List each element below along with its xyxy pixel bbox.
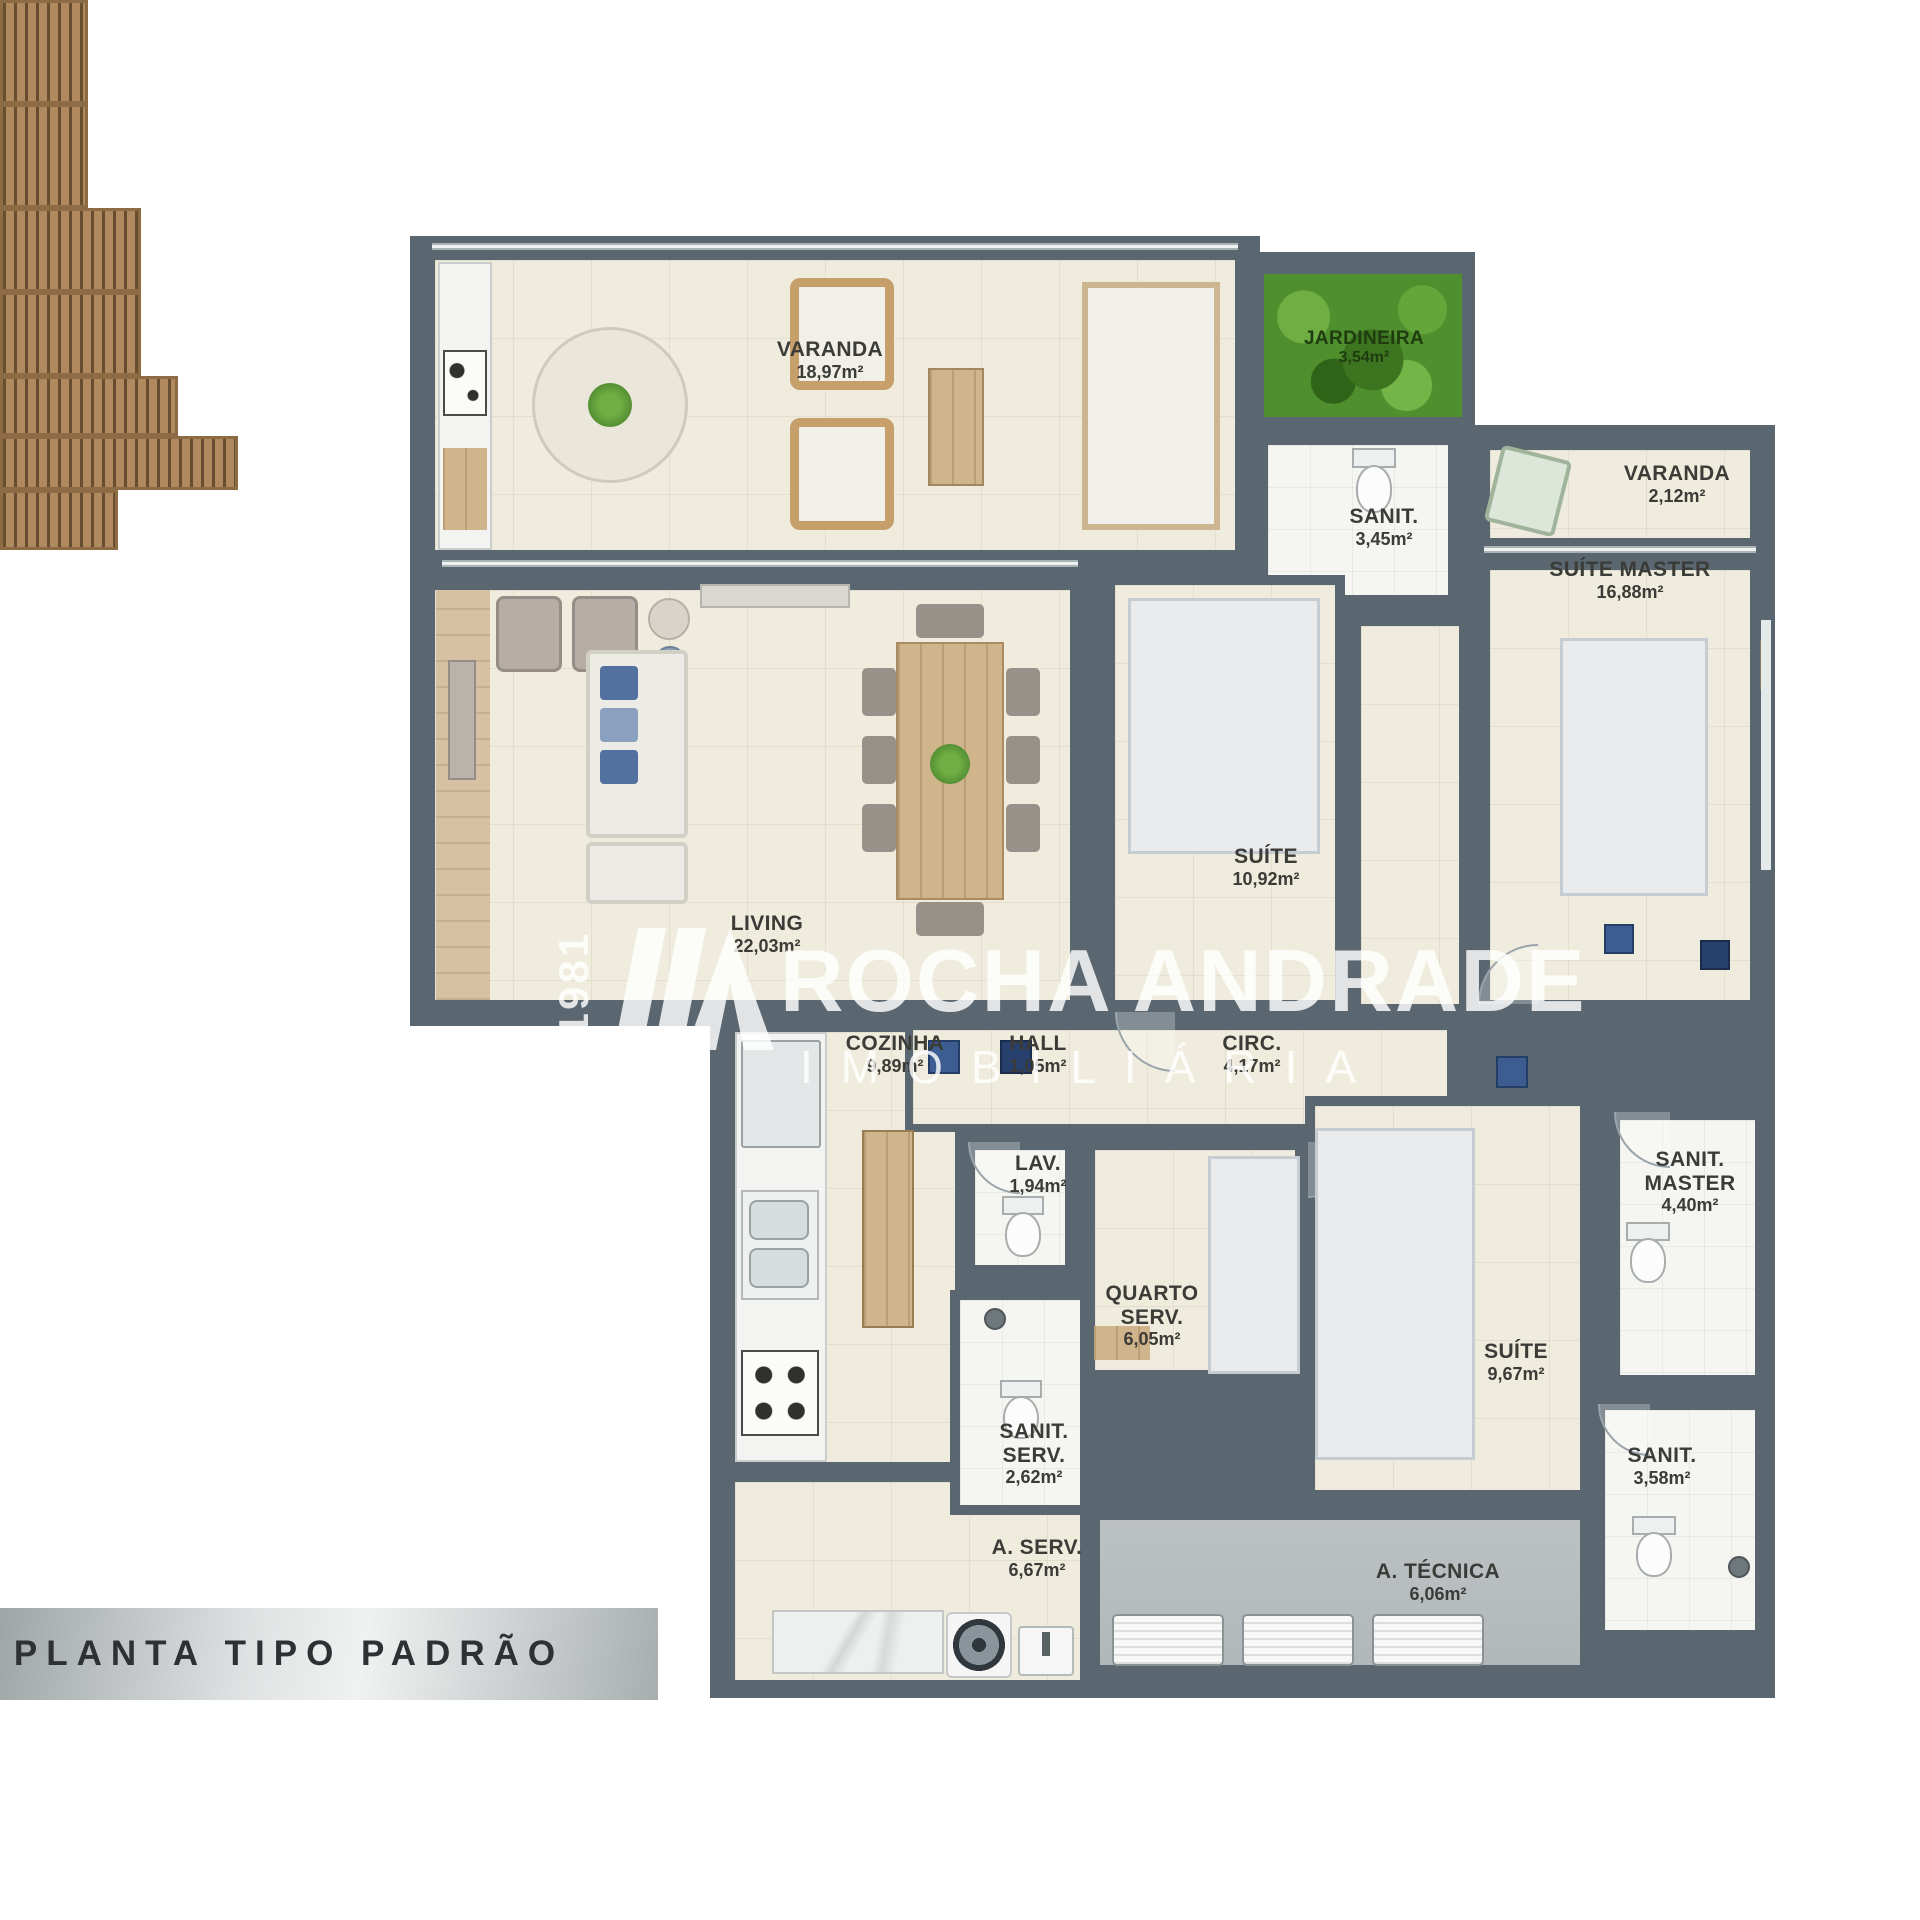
dining-plant-icon <box>930 744 970 784</box>
armchair-gray <box>496 596 562 672</box>
sink-bowl <box>749 1200 809 1240</box>
side-table-round <box>648 598 690 640</box>
window-suite-master <box>1761 620 1771 870</box>
daybed <box>1082 282 1220 530</box>
bed-single <box>1208 1156 1300 1374</box>
label-area-tecnica: A. TÉCNICA6,06m² <box>1348 1560 1528 1604</box>
glass-living-divider <box>442 560 1078 567</box>
ac-condenser <box>1242 1614 1354 1666</box>
fridge-icon <box>741 1040 821 1148</box>
dining-chair <box>1006 736 1040 784</box>
toilet-icon <box>1632 1516 1676 1578</box>
label-suite-master: SUÍTE MASTER16,88m² <box>1515 558 1745 602</box>
tank-tap <box>1042 1632 1050 1656</box>
dining-chair <box>916 604 984 638</box>
dining-chair <box>916 902 984 936</box>
toilet-icon <box>1626 1222 1670 1284</box>
coffee-table <box>928 368 984 486</box>
wardrobe <box>0 0 88 104</box>
cooktop-icon <box>443 350 487 416</box>
wardrobe-item <box>1604 924 1634 954</box>
shower-head-icon <box>984 1308 1006 1330</box>
dining-chair <box>1006 668 1040 716</box>
quarto-serv-wardrobe <box>0 490 118 550</box>
label-varanda-gourmet: VARANDA18,97m² <box>777 338 883 382</box>
label-quarto-serv: QUARTO SERV.6,05m² <box>1097 1282 1207 1350</box>
hall-wardrobe <box>0 376 178 436</box>
stove-icon <box>741 1350 819 1436</box>
wardrobe-item <box>1496 1056 1528 1088</box>
plan-title: PLANTA TIPO PADRÃO <box>14 1634 564 1674</box>
sofa-chaise <box>586 842 688 904</box>
table-plant-icon <box>588 383 632 427</box>
label-sanit-master: SANIT. MASTER4,40m² <box>1632 1148 1748 1216</box>
sofa-cushion-blue <box>600 666 638 700</box>
label-sanit-suite: SANIT.3,45m² <box>1350 505 1419 549</box>
wardrobe <box>0 292 141 376</box>
gourmet-shelf <box>443 448 487 530</box>
bed-suite2 <box>1128 598 1320 854</box>
shower-head-icon <box>1728 1556 1750 1578</box>
room-corridor-suites <box>1355 620 1465 1010</box>
washer-icon <box>946 1612 1012 1678</box>
sofa-cushion-blue <box>600 708 638 742</box>
rattan-armchair <box>790 418 894 530</box>
entry-wood-floor <box>436 590 490 1000</box>
label-sanit-3: SANIT.3,58m² <box>1628 1444 1697 1488</box>
toilet-icon <box>1002 1196 1044 1258</box>
label-sanit-serv: SANIT. SERV.2,62m² <box>986 1420 1082 1488</box>
label-varanda-master: VARANDA2,12m² <box>1624 462 1730 506</box>
sink-bowl <box>749 1248 809 1288</box>
label-suite-2: SUÍTE10,92m² <box>1232 845 1299 889</box>
wardrobe-item <box>1700 940 1730 970</box>
window-varanda-top <box>432 243 1238 250</box>
plan-title-banner: PLANTA TIPO PADRÃO <box>0 1608 658 1700</box>
label-living: LIVING22,03m² <box>731 912 803 956</box>
wardrobe <box>0 208 141 292</box>
media-console <box>700 584 850 608</box>
label-hall: HALL1,05m² <box>1009 1032 1067 1076</box>
label-circ: CIRC.4,17m² <box>1222 1032 1281 1076</box>
kitchen-bar <box>862 1130 914 1328</box>
bed-master <box>1560 638 1708 896</box>
laundry-counter <box>772 1610 944 1674</box>
dining-chair <box>862 804 896 852</box>
label-jardineira: JARDINEIRA3,54m² <box>1304 328 1424 368</box>
label-area-serv: A. SERV.6,67m² <box>992 1536 1083 1580</box>
entry-bench <box>448 660 476 780</box>
ac-condenser <box>1112 1614 1224 1666</box>
ac-condenser <box>1372 1614 1484 1666</box>
glass-varanda-master-divider <box>1484 546 1756 553</box>
label-suite-3: SUÍTE9,67m² <box>1484 1340 1548 1384</box>
dining-chair <box>862 736 896 784</box>
dining-chair <box>1006 804 1040 852</box>
wardrobe <box>0 104 88 208</box>
label-cozinha: COZINHA9,89m² <box>846 1032 944 1076</box>
floor-plan: VARANDA18,97m² JARDINEIRA3,54m² SANIT.3,… <box>0 0 1920 1920</box>
dining-chair <box>862 668 896 716</box>
label-lav: LAV.1,94m² <box>1009 1152 1066 1196</box>
bed-double <box>1315 1128 1475 1460</box>
sofa-cushion-blue <box>600 750 638 784</box>
circ-wardrobe <box>0 436 238 490</box>
